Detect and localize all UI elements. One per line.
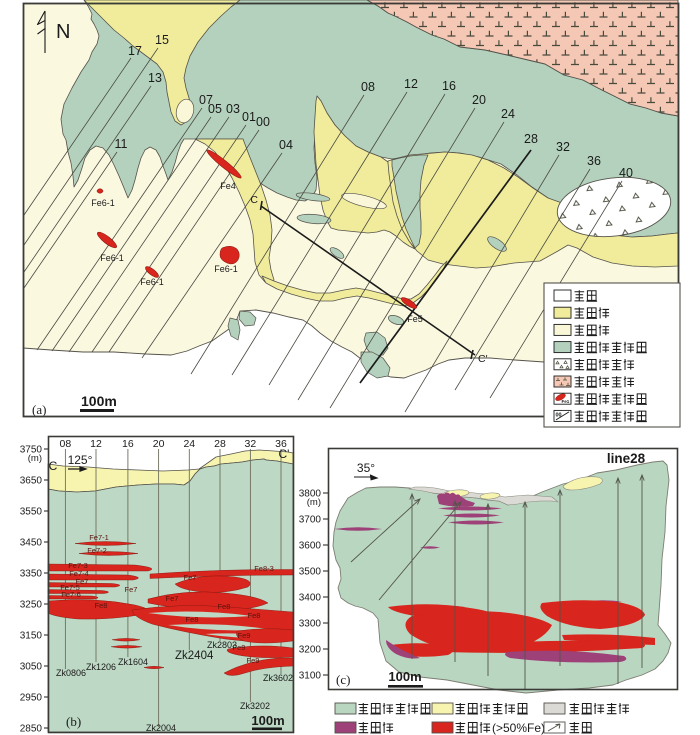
svg-text:04: 04 bbox=[279, 138, 293, 152]
svg-text:Fe5: Fe5 bbox=[407, 314, 423, 324]
svg-text:08: 08 bbox=[60, 438, 72, 450]
svg-text:(m): (m) bbox=[28, 453, 42, 464]
svg-text:3200: 3200 bbox=[299, 645, 322, 656]
svg-text:N: N bbox=[56, 21, 70, 43]
svg-text:Fe7: Fe7 bbox=[125, 585, 138, 594]
svg-text:Fe8: Fe8 bbox=[248, 611, 261, 620]
svg-text:Fe4: Fe4 bbox=[220, 181, 236, 191]
svg-text:3550: 3550 bbox=[20, 507, 43, 518]
svg-text:03: 03 bbox=[226, 102, 240, 116]
svg-text:Fe7: Fe7 bbox=[166, 594, 179, 603]
svg-text:Fe7: Fe7 bbox=[184, 573, 197, 582]
svg-text:32: 32 bbox=[245, 438, 257, 450]
svg-text:3700: 3700 bbox=[299, 515, 322, 526]
svg-text:3100: 3100 bbox=[299, 671, 322, 682]
svg-text:01: 01 bbox=[242, 110, 256, 124]
svg-text:(m): (m) bbox=[307, 497, 321, 508]
svg-text:Fe6-1: Fe6-1 bbox=[91, 198, 115, 208]
svg-text:(c): (c) bbox=[336, 672, 350, 687]
svg-text:2850: 2850 bbox=[20, 724, 43, 735]
svg-text:Fe6-1: Fe6-1 bbox=[140, 277, 164, 287]
svg-text:28: 28 bbox=[524, 132, 538, 146]
svg-text:100m: 100m bbox=[251, 713, 284, 728]
svg-text:36: 36 bbox=[587, 154, 601, 168]
svg-text:Zk1206: Zk1206 bbox=[86, 662, 116, 672]
svg-text:3150: 3150 bbox=[20, 631, 43, 642]
svg-text:Fe9: Fe9 bbox=[247, 656, 260, 665]
svg-text:C': C' bbox=[279, 447, 290, 461]
svg-text:3050: 3050 bbox=[20, 662, 43, 673]
svg-text:Zk0806: Zk0806 bbox=[56, 668, 86, 678]
svg-text:32: 32 bbox=[556, 140, 570, 154]
svg-text:C: C bbox=[49, 459, 58, 473]
svg-text:Fe8: Fe8 bbox=[218, 602, 231, 611]
svg-text:line28: line28 bbox=[607, 451, 646, 466]
svg-text:Fe8-3: Fe8-3 bbox=[254, 564, 274, 573]
svg-text:Fe7-1: Fe7-1 bbox=[89, 533, 109, 542]
svg-text:28: 28 bbox=[214, 438, 226, 450]
svg-text:16: 16 bbox=[442, 79, 456, 93]
svg-text:Zk3602: Zk3602 bbox=[263, 673, 293, 683]
svg-text:16: 16 bbox=[122, 438, 134, 450]
svg-text:20: 20 bbox=[472, 93, 486, 107]
svg-text:05: 05 bbox=[208, 102, 222, 116]
svg-text:Fe8: Fe8 bbox=[95, 601, 108, 610]
svg-text:3450: 3450 bbox=[20, 538, 43, 549]
svg-text:Fe1: Fe1 bbox=[562, 399, 570, 404]
svg-text:3300: 3300 bbox=[299, 619, 322, 630]
svg-text:Fe6-1: Fe6-1 bbox=[214, 264, 238, 274]
svg-text:Fe6-1: Fe6-1 bbox=[100, 253, 124, 263]
svg-text:24: 24 bbox=[183, 438, 195, 450]
svg-text:15: 15 bbox=[155, 33, 169, 47]
svg-text:40: 40 bbox=[619, 166, 633, 180]
svg-text:C': C' bbox=[478, 353, 488, 365]
svg-text:2950: 2950 bbox=[20, 693, 43, 704]
svg-text:3650: 3650 bbox=[20, 476, 43, 487]
svg-text:08: 08 bbox=[361, 80, 375, 94]
svg-text:20: 20 bbox=[153, 438, 165, 450]
svg-text:00: 00 bbox=[256, 115, 270, 129]
svg-text:100m: 100m bbox=[388, 669, 421, 684]
svg-text:Zk2803: Zk2803 bbox=[207, 640, 237, 650]
svg-text:125°: 125° bbox=[68, 453, 93, 467]
svg-text:12: 12 bbox=[90, 438, 102, 450]
svg-text:35°: 35° bbox=[357, 461, 375, 475]
svg-text:Zk2004: Zk2004 bbox=[146, 723, 176, 733]
svg-text:13: 13 bbox=[148, 71, 162, 85]
svg-text:3500: 3500 bbox=[299, 567, 322, 578]
svg-text:17: 17 bbox=[128, 44, 142, 58]
svg-text:Zk2404: Zk2404 bbox=[175, 650, 214, 662]
svg-text:00: 00 bbox=[556, 412, 562, 418]
svg-text:3600: 3600 bbox=[299, 541, 322, 552]
svg-text:Zk1604: Zk1604 bbox=[118, 657, 148, 667]
svg-text:3250: 3250 bbox=[20, 600, 43, 611]
svg-text:100m: 100m bbox=[81, 393, 117, 409]
svg-text:Fe9: Fe9 bbox=[238, 631, 251, 640]
svg-text:Zk3202: Zk3202 bbox=[240, 701, 270, 711]
svg-text:Fe8: Fe8 bbox=[186, 615, 199, 624]
svg-text:Fe7-6: Fe7-6 bbox=[61, 590, 81, 599]
svg-text:(b): (b) bbox=[66, 714, 81, 729]
svg-text:Fe7-2: Fe7-2 bbox=[87, 546, 107, 555]
svg-text:(>50%Fe): (>50%Fe) bbox=[492, 721, 545, 735]
svg-text:3400: 3400 bbox=[299, 593, 322, 604]
svg-text:12: 12 bbox=[404, 77, 418, 91]
svg-text:3350: 3350 bbox=[20, 569, 43, 580]
svg-text:(a): (a) bbox=[32, 402, 46, 417]
svg-text:11: 11 bbox=[115, 137, 128, 151]
svg-text:24: 24 bbox=[501, 107, 515, 121]
svg-text:C: C bbox=[250, 194, 258, 206]
